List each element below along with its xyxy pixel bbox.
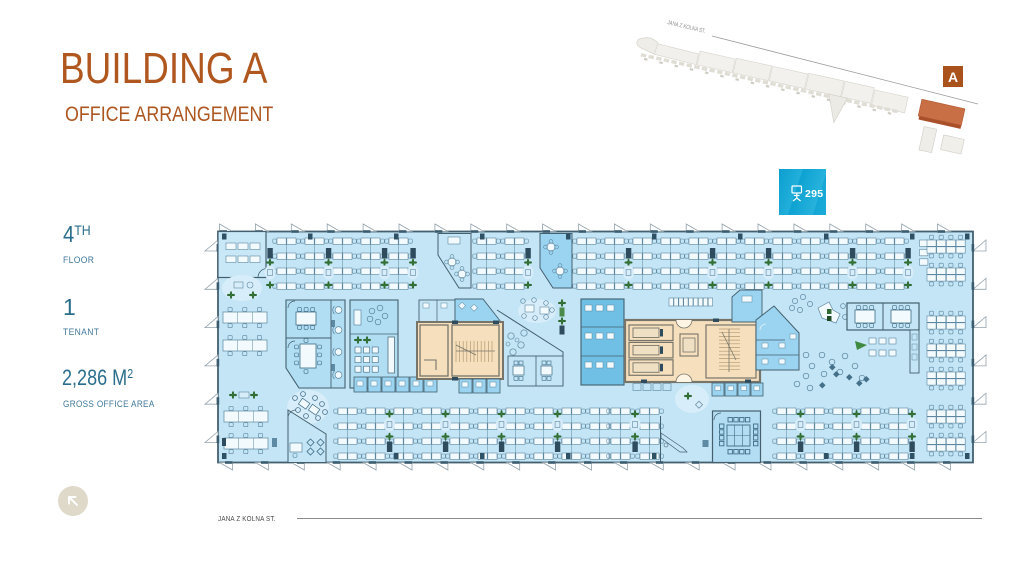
svg-text:JANA Z KOLNA ST.: JANA Z KOLNA ST. — [667, 20, 707, 35]
svg-text:A: A — [948, 69, 958, 85]
